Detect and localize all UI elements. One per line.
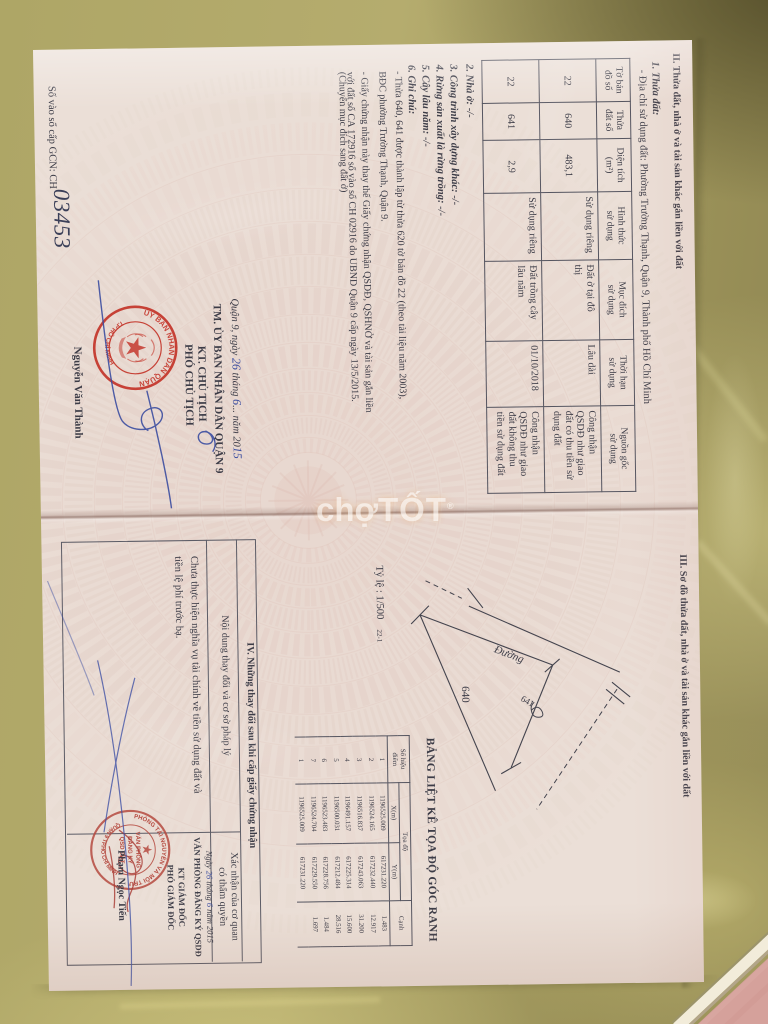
svg-text:640: 640 bbox=[459, 686, 471, 703]
svg-text:641: 641 bbox=[519, 693, 536, 708]
svg-text:Đường: Đường bbox=[492, 643, 526, 666]
